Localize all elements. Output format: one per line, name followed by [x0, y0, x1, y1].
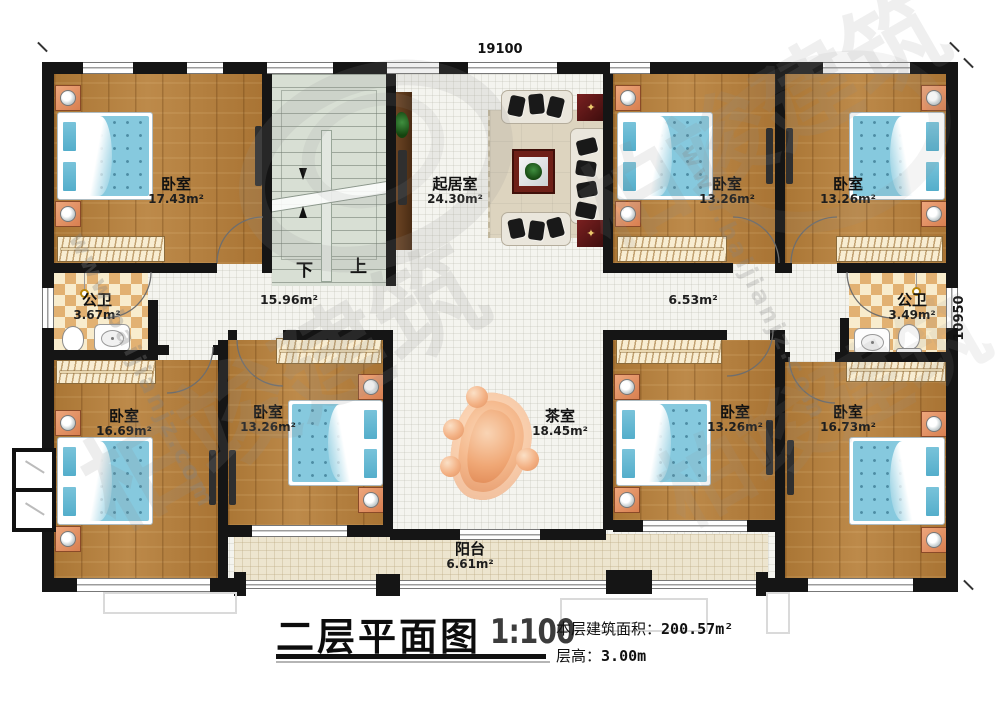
sofa-cushion: [546, 95, 565, 118]
dimension-tick: [963, 580, 974, 591]
window: [643, 520, 747, 532]
wardrobe: [57, 236, 165, 262]
room-name: 茶室: [532, 408, 588, 425]
room-area: 18.45m²: [532, 425, 588, 438]
title-underline-thin: [276, 661, 550, 663]
wall-segment: [228, 330, 237, 340]
platform-line: [25, 460, 44, 473]
pillow: [362, 447, 379, 480]
room-area: 13.26m²: [820, 193, 876, 206]
wall-segment: [347, 525, 383, 537]
bed-sheet: [328, 404, 361, 482]
wall-segment: [603, 74, 613, 273]
room-label-living: 起居室 24.30m²: [427, 176, 483, 206]
stair-down-label: 下: [296, 256, 313, 281]
room-label-bedroom-b: 卧室 13.26m²: [820, 176, 876, 206]
room-area: 13.26m²: [707, 421, 763, 434]
room-name: 卧室: [820, 176, 876, 193]
wardrobe: [836, 236, 943, 262]
sofa: [501, 212, 571, 246]
title-underline: [276, 654, 546, 659]
window: [808, 578, 913, 592]
pillow: [61, 160, 78, 193]
room-label-bedroom-bcl: 卧室 13.26m²: [240, 404, 296, 434]
bed: [288, 400, 383, 486]
room-label-bath-right: 公卫 3.49m²: [888, 292, 935, 322]
hallway-area-label: 15.96m²: [260, 292, 318, 307]
tv-panel: [209, 450, 216, 505]
pillow: [924, 485, 941, 518]
drawing-title: 二层平面图: [276, 606, 481, 661]
balcony-pillar: [376, 574, 400, 596]
wall-segment: [747, 520, 775, 532]
wardrobe: [276, 338, 382, 364]
balcony-door: [460, 529, 540, 540]
room-label-balcony: 阳台 6.61m²: [446, 541, 493, 571]
sofa-cushion: [575, 137, 598, 156]
pillow: [61, 120, 78, 153]
room-name: 公卫: [73, 292, 120, 309]
stair-arrow-up-icon: [299, 206, 307, 218]
wall-segment: [386, 74, 396, 286]
wall-segment: [603, 263, 733, 273]
sofa-cushion: [528, 220, 545, 241]
nightstand: [55, 201, 81, 227]
window: [83, 62, 133, 74]
floor-area-value: 200.57m²: [661, 620, 733, 638]
plant-icon: [395, 112, 409, 138]
stair-arrow-down-icon: [299, 168, 307, 180]
sink: [94, 324, 130, 352]
wall-segment: [383, 330, 393, 537]
room-label-bedroom-br: 卧室 16.73m²: [820, 404, 876, 434]
floor-height-stat: 层高：3.00m: [556, 645, 646, 666]
sofa-cushion: [576, 180, 598, 198]
tv-panel: [766, 128, 773, 184]
bed-sheet: [79, 116, 112, 196]
wardrobe: [617, 236, 727, 262]
floor-plan-canvas: 卧室 17.43m² 起居室 24.30m² 卧室 13.26m² 卧室 13.…: [0, 0, 1000, 706]
wall-segment: [283, 330, 383, 340]
wall-segment: [603, 330, 613, 530]
sofa-cushion: [575, 201, 598, 220]
nightstand: [615, 201, 641, 227]
window: [267, 62, 333, 74]
tv-panel: [787, 440, 794, 495]
room-area: 6.61m²: [446, 558, 493, 571]
tv-panel: [255, 126, 262, 186]
room-area: 3.67m²: [73, 309, 120, 322]
console-panel: [398, 150, 407, 205]
stair-up-label: 上: [350, 252, 367, 277]
room-area: 16.73m²: [820, 421, 876, 434]
dimension-tick: [963, 58, 974, 69]
wall-segment: [775, 74, 785, 264]
pillow: [620, 408, 637, 441]
bed-sheet: [638, 404, 671, 482]
wall-segment: [54, 350, 158, 360]
decor-ball: [466, 386, 488, 408]
room-name: 卧室: [820, 404, 876, 421]
platform-line: [25, 502, 44, 515]
nightstand: [921, 85, 947, 111]
tv-panel: [229, 450, 236, 505]
wall-segment: [770, 330, 775, 340]
nightstand: [614, 374, 640, 400]
decor-ball: [516, 448, 539, 471]
bed-sheet: [890, 116, 923, 196]
side-table: [577, 94, 605, 121]
room-label-bedroom-bl: 卧室 16.69m²: [96, 408, 152, 438]
nightstand: [921, 411, 947, 437]
wall-segment: [775, 263, 792, 273]
wall-segment: [218, 340, 228, 578]
pillow: [924, 445, 941, 478]
wall-segment: [775, 330, 785, 578]
sink-basin: [861, 334, 884, 351]
room-name: 卧室: [240, 404, 296, 421]
nightstand: [614, 487, 640, 513]
wardrobe: [56, 360, 156, 384]
bed-sheet: [890, 441, 923, 521]
wall-segment: [613, 520, 643, 532]
pillow: [621, 120, 638, 153]
dimension-tick: [37, 42, 48, 53]
tv-panel: [766, 420, 773, 475]
dimension-tick: [949, 42, 960, 53]
balcony-pillar: [606, 570, 652, 594]
pillow: [924, 160, 941, 193]
room-name: 起居室: [427, 176, 483, 193]
nightstand: [55, 410, 81, 436]
bed-sheet: [79, 441, 112, 521]
sofa-cushion: [575, 160, 597, 178]
bed: [849, 437, 945, 525]
nightstand: [358, 487, 384, 513]
window: [823, 62, 910, 74]
room-name: 阳台: [446, 541, 493, 558]
ground-line: [766, 592, 790, 634]
sink-basin: [101, 330, 124, 347]
pillow: [61, 445, 78, 478]
wardrobe: [616, 338, 722, 364]
decor-ball: [440, 456, 461, 477]
room-name: 卧室: [699, 176, 755, 193]
sofa: [501, 90, 573, 124]
dimension-right: 10950: [952, 288, 968, 348]
room-label-tea: 茶室 18.45m²: [532, 408, 588, 438]
window: [252, 525, 347, 537]
sofa-cushion: [507, 95, 526, 118]
pillow: [61, 485, 78, 518]
decor-ball: [443, 419, 464, 440]
wall-segment: [613, 330, 727, 340]
room-area: 3.49m²: [888, 309, 935, 322]
nightstand: [615, 85, 641, 111]
wall-segment: [837, 263, 946, 273]
pillow: [924, 120, 941, 153]
wall-segment: [262, 74, 272, 273]
room-label-bedroom-bcr: 卧室 13.26m²: [707, 404, 763, 434]
toilet: [898, 324, 920, 350]
hallway-area-label: 6.53m²: [668, 292, 717, 307]
nightstand: [921, 527, 947, 553]
wall-segment: [228, 525, 252, 537]
room-area: 13.26m²: [699, 193, 755, 206]
floor-height-value: 3.00m: [601, 647, 646, 665]
side-table: [577, 220, 605, 247]
plant-icon: [525, 163, 542, 180]
nightstand: [921, 201, 947, 227]
floor-area-label: 本层建筑面积：: [556, 620, 661, 638]
room-label-bedroom-a: 卧室 13.26m²: [699, 176, 755, 206]
wall-segment: [835, 352, 849, 362]
window: [187, 62, 223, 74]
pendant-stem: [916, 273, 917, 288]
room-name: 公卫: [888, 292, 935, 309]
window: [77, 578, 210, 592]
coffee-table: [512, 149, 555, 194]
floor-height-label: 层高：: [556, 647, 601, 665]
nightstand: [55, 85, 81, 111]
room-label-bedroom-tl: 卧室 17.43m²: [148, 176, 204, 206]
bed: [57, 437, 153, 525]
pillow: [362, 408, 379, 441]
nightstand: [55, 526, 81, 552]
window: [468, 62, 557, 74]
bed: [57, 112, 153, 200]
wall-segment: [785, 352, 790, 362]
wall-segment: [390, 529, 460, 540]
ground-line: [103, 592, 237, 614]
tv-panel: [786, 128, 793, 184]
bed: [616, 400, 711, 486]
wall-segment: [213, 345, 223, 355]
room-label-bath-left: 公卫 3.67m²: [73, 292, 120, 322]
floor-area-stat: 本层建筑面积：200.57m²: [556, 618, 733, 639]
room-area: 24.30m²: [427, 193, 483, 206]
room-area: 13.26m²: [240, 421, 296, 434]
dimension-top: 19100: [420, 42, 580, 57]
window: [387, 62, 439, 74]
sofa-cushion: [528, 93, 545, 114]
floor-balcony: [234, 534, 768, 580]
room-area: 16.69m²: [96, 425, 152, 438]
room-name: 卧室: [96, 408, 152, 425]
pillow: [620, 447, 637, 480]
bed-sheet: [639, 116, 672, 196]
balcony-rail: [234, 580, 768, 589]
pillow: [621, 160, 638, 193]
wall-segment: [54, 263, 217, 273]
wall-segment: [148, 345, 169, 355]
sofa-cushion: [507, 218, 526, 240]
room-area: 17.43m²: [148, 193, 204, 206]
exterior-platform: [12, 448, 56, 532]
window: [610, 62, 650, 74]
room-name: 卧室: [707, 404, 763, 421]
wall-segment: [849, 352, 946, 362]
pendant-stem: [84, 273, 85, 290]
nightstand: [358, 374, 384, 400]
wall-segment: [540, 529, 606, 540]
window: [42, 288, 54, 328]
room-name: 卧室: [148, 176, 204, 193]
sofa-cushion: [546, 216, 565, 238]
stair-stringer: [321, 130, 332, 282]
toilet: [62, 326, 84, 352]
